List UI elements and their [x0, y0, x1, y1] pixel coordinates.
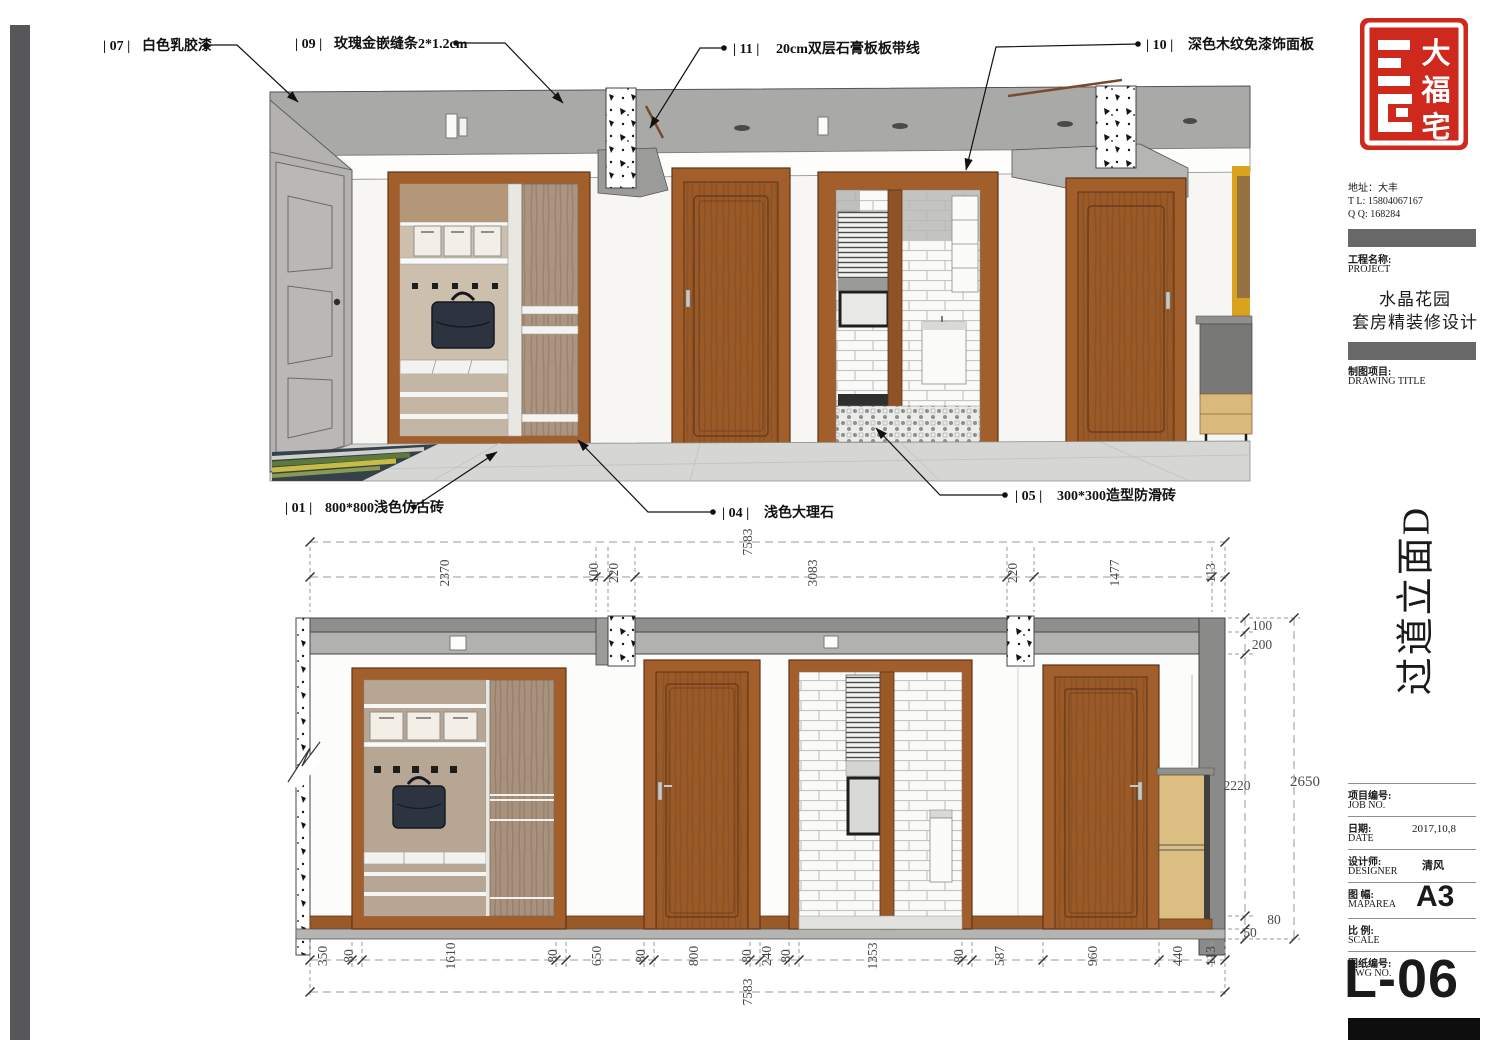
project-label-en: PROJECT — [1348, 264, 1390, 275]
dim-label: 1610 — [443, 942, 458, 969]
company-tel: T L: 15804067167 — [1348, 195, 1423, 208]
dim-label: 80 — [951, 949, 966, 963]
dim-label: 2220 — [1224, 778, 1251, 793]
project-name-line2: 套房精装修设计 — [1340, 308, 1490, 333]
company-address: 地址：大丰 — [1348, 182, 1398, 195]
row-divider — [1348, 816, 1476, 817]
maparea-value: A3 — [1416, 880, 1454, 914]
date-label-en: DATE — [1348, 833, 1374, 844]
door-handle — [686, 290, 690, 307]
callout-07: | 07 | 白色乳胶漆 — [103, 37, 298, 102]
dim-label: 440 — [1170, 946, 1185, 967]
callout-label: 深色木纹免漆饰面板 — [1188, 36, 1315, 53]
render-view — [270, 80, 1252, 481]
pocket-door-edge — [888, 190, 902, 442]
callout-tag: | 01 | — [285, 501, 312, 516]
date-value: 2017,10,8 — [1412, 823, 1456, 835]
callout-tag: | 10 | — [1146, 38, 1173, 53]
title-block: 大 福 宅 地址：大丰 T L: 15804067167 Q Q: 168284… — [1340, 0, 1500, 1061]
bench-slab — [400, 360, 508, 374]
logo-char: 福 — [1420, 74, 1450, 107]
bath-vanity — [922, 316, 966, 384]
render-floor — [270, 441, 1250, 481]
dim-label: 80 — [778, 949, 793, 963]
ceiling-light — [450, 636, 466, 650]
downlight — [1183, 118, 1197, 124]
window-blinds — [846, 675, 880, 761]
row-divider — [1348, 882, 1476, 883]
drawing-sheet: | 07 | 白色乳胶漆 | 09 | 玫瑰金嵌缝条2*1.2cm | 11 |… — [0, 0, 1500, 1061]
door-handle — [334, 299, 340, 305]
dim-label: 80 — [545, 949, 560, 963]
hand-bag — [432, 293, 494, 348]
dim-labels-top: 7583 2370 100 220 3083 220 1477 113 — [437, 528, 1218, 586]
divider-bar — [1348, 342, 1476, 360]
dim-label: 200 — [1252, 637, 1273, 652]
dim-labels-right: 100 200 2220 80 50 2650 — [1224, 618, 1321, 940]
mosaic-floor — [836, 406, 980, 442]
bench-slab — [364, 852, 486, 864]
mirror — [848, 778, 880, 834]
dim-label: 1353 — [865, 942, 880, 969]
pocket-door-edge — [880, 672, 894, 929]
elev-entry-cabinet — [352, 668, 566, 929]
project-name-line1: 水晶花园 — [1340, 285, 1490, 310]
terrazzo-beam — [608, 616, 635, 666]
callout-label: 20cm双层石膏板板带线 — [776, 40, 920, 57]
company-logo: 大 福 宅 — [1360, 18, 1468, 150]
row-divider — [1348, 918, 1476, 919]
dim-labels-bottom: 350 80 1610 80 650 80 800 80 240 80 1353… — [315, 942, 1218, 1005]
terrazzo-beam — [606, 88, 636, 188]
callout-label: 白色乳胶漆 — [142, 37, 212, 54]
elevation-view — [288, 616, 1225, 955]
bottom-bar — [1348, 1018, 1480, 1040]
dim-label: 800 — [686, 946, 701, 967]
render-door-2 — [1066, 178, 1186, 444]
drawing-title-vertical: 过道立面D — [1385, 491, 1440, 711]
dim-label: 240 — [759, 946, 774, 967]
callout-tag: | 04 | — [722, 506, 749, 521]
dim-label: 2370 — [437, 559, 452, 586]
callout-tag: | 11 | — [733, 42, 759, 57]
elev-door-1 — [644, 660, 760, 929]
dim-total-height: 2650 — [1290, 774, 1320, 790]
dim-label: 100 — [586, 563, 601, 584]
ceiling-light — [824, 636, 838, 648]
render-bathroom-opening — [818, 172, 998, 448]
dim-label: 113 — [1203, 946, 1218, 966]
downlight — [892, 123, 908, 129]
company-qq: Q Q: 168284 — [1348, 208, 1400, 221]
dim-label: 3083 — [805, 559, 820, 586]
window-blinds — [838, 212, 888, 278]
job-no-label-en: JOB NO. — [1348, 800, 1385, 811]
terrazzo-beam — [1096, 86, 1136, 168]
render-door-1 — [672, 168, 790, 448]
logo-char: 大 — [1421, 37, 1450, 70]
sideboard-body — [1200, 324, 1252, 394]
dim-label: 350 — [315, 946, 330, 967]
render-entry-cabinet — [388, 172, 590, 448]
dim-label: 113 — [1203, 563, 1218, 583]
dim-label: 1477 — [1107, 559, 1122, 586]
gray-door — [276, 162, 344, 466]
drawing-label-en: DRAWING TITLE — [1348, 376, 1426, 387]
callout-tag: | 09 | — [295, 37, 322, 52]
downlight — [734, 125, 750, 131]
callout-label: 300*300造型防滑砖 — [1057, 487, 1176, 504]
dim-label: 220 — [1005, 563, 1020, 584]
designer-value: 清风 — [1422, 857, 1444, 873]
dim-label: 80 — [739, 949, 754, 963]
dim-label: 50 — [1243, 925, 1257, 940]
dim-label: 80 — [1267, 912, 1281, 927]
door-handle — [658, 782, 662, 800]
dim-label: 80 — [341, 949, 356, 963]
elev-door-2 — [1043, 665, 1159, 929]
callout-label: 玫瑰金嵌缝条2*1.2cm — [334, 35, 468, 52]
storage-boxes — [370, 712, 477, 740]
bath-vanity — [930, 810, 952, 882]
callout-label: 浅色大理石 — [764, 504, 834, 521]
callout-tag: | 05 | — [1015, 489, 1042, 504]
row-divider — [1348, 783, 1476, 784]
dim-label: 960 — [1085, 946, 1100, 967]
logo-char: 宅 — [1421, 110, 1450, 144]
door-handle — [1166, 292, 1170, 309]
sheet-number: L-06 — [1344, 948, 1459, 1010]
elev-bathroom-opening — [789, 660, 972, 929]
callout-tag: | 07 | — [103, 39, 130, 54]
dim-total-width: 7583 — [740, 528, 755, 555]
row-divider — [1348, 849, 1476, 850]
drawing-canvas: | 07 | 白色乳胶漆 | 09 | 玫瑰金嵌缝条2*1.2cm | 11 |… — [0, 0, 1340, 1061]
storage-boxes — [414, 226, 501, 256]
dim-label: 100 — [1252, 618, 1273, 633]
terrazzo-beam — [1007, 616, 1034, 666]
maparea-label-en: MAPAREA — [1348, 899, 1396, 910]
dim-label: 220 — [606, 563, 621, 584]
callout-label: 800*800浅色仿古砖 — [325, 499, 444, 516]
divider-bar — [1348, 229, 1476, 247]
downlight — [1057, 121, 1073, 127]
bath-shelves — [952, 196, 978, 292]
designer-label-en: DESIGNER — [1348, 866, 1397, 877]
dim-total-width-bottom: 7583 — [740, 978, 755, 1005]
dim-label: 650 — [589, 946, 604, 967]
wall-picture — [1237, 176, 1250, 298]
scale-label-en: SCALE — [1348, 935, 1380, 946]
mirror — [840, 292, 888, 326]
dim-label: 587 — [992, 946, 1007, 967]
dim-label: 80 — [633, 949, 648, 963]
floor-strip — [296, 929, 1225, 939]
door-handle — [1138, 782, 1142, 800]
